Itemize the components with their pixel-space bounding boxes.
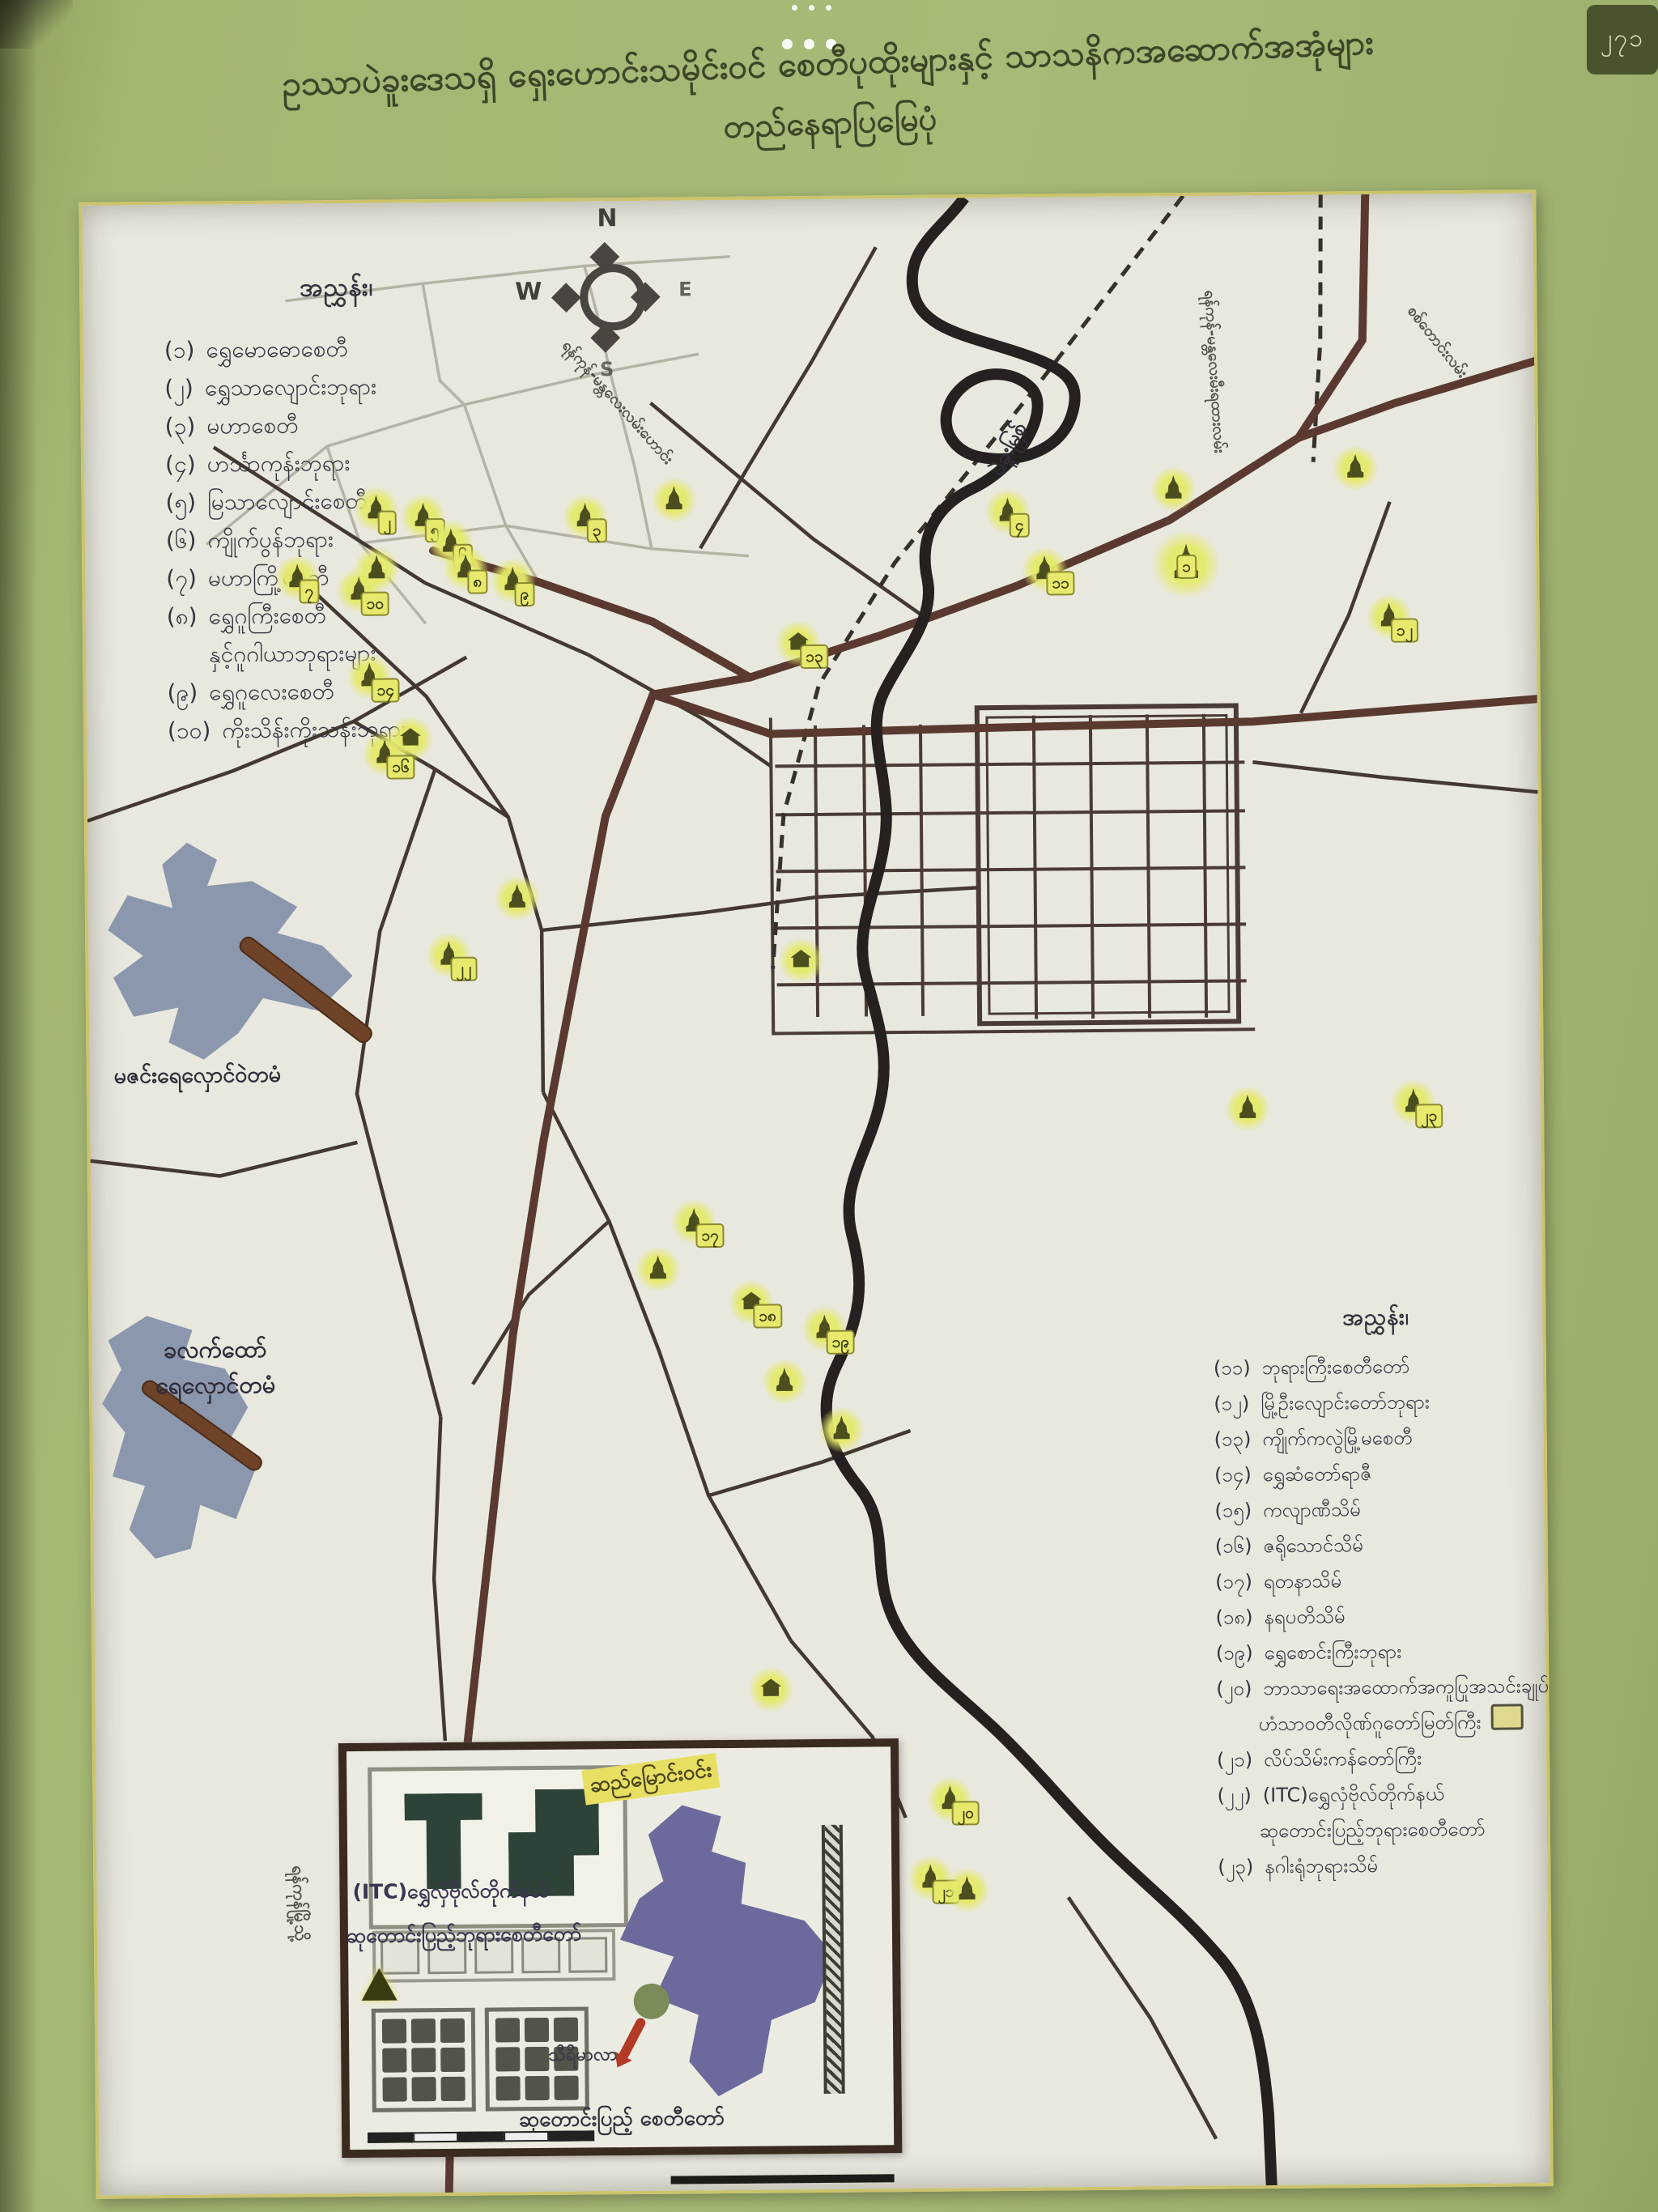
legend-item: (၂)ရွှေသာလျောင်းဘုရား [164,367,404,407]
legend-item-label: ကလျာဏီသိမ် [1263,1491,1361,1528]
legend-item: (၁၈)နရပတိသိမ် [1215,1597,1548,1636]
pagoda-stupa-icon: ၁၄ [346,654,392,700]
legend-item: (၃)မဟာစေတီ [164,405,404,445]
page-left-edge-shadow [0,0,37,2212]
legend-item-label: နဂါးရုံဘုရားသိမ် [1265,1848,1378,1884]
south-reservoir-label-line2: ရေလှောင်တမံ [155,1367,276,1403]
book-page-photo: ၂၇၁ ဥဿာပဲခူးဒေသရှိ ရှေးဟောင်းသမိုင်းဝင် … [0,0,1658,2212]
inset-scale-bar [368,2130,594,2142]
legend-item-label: ဘုရားကြီးစေတီတော် [1261,1349,1409,1386]
pagoda-stupa-icon [1225,1086,1270,1131]
inset-itc-label-line2: ဆုတောင်းပြည့်ဘုရားစေတီတော် [346,1921,582,1954]
old-city-grid [771,705,1255,1033]
pagoda-number-chip: ၁၇ [695,1223,725,1248]
shrine-hall-icon [748,1666,793,1712]
pagoda-stupa-icon: ၈ [443,546,488,591]
pagoda-number-chip: ၁၃ [800,644,829,669]
pagoda-number-chip: ၁ [1176,555,1197,579]
pagoda-stupa-icon [651,477,696,522]
pagoda-number-chip: ၁၉ [826,1330,855,1355]
pagoda-stupa-icon [818,1406,864,1452]
legend-item-label: ဇရိုသောင်သိမ် [1263,1527,1363,1563]
pagoda-number-chip: ၂၃ [1415,1104,1443,1128]
road-label-to-yangon: ရန်ကုန်မြို့သို့ [283,1865,312,1942]
legend-item-number: (၁၁) [1214,1350,1251,1385]
pagoda-stupa-icon: ၃ [562,494,607,539]
legend-item: (၁၁)ဘုရားကြီးစေတီတော် [1214,1347,1546,1386]
pagoda-stupa-icon [636,1246,681,1291]
legend-item-label: ကျိုက်ကလွဲမြို့မစေတီ [1262,1420,1413,1457]
pagoda-stupa-icon [495,875,540,921]
legend-item-number: (၃) [164,407,195,445]
pagoda-stupa-icon: ၂၀ [927,1776,972,1822]
legend-item-number: (၁၃) [1214,1421,1251,1457]
legend-item-label: နရပတိသိမ် [1264,1598,1346,1635]
legend-item-label: (ITC)ရွှေလှံဗိုလ်တိုက်နယ် [1263,1776,1445,1813]
pagoda-stupa-icon: ၄ [984,489,1030,534]
camera-artifact-dots-small [792,5,831,11]
legend-item-number: (၁၉) [1216,1635,1253,1670]
pagoda-number-chip: ၁၆ [386,755,415,779]
legend-item-label: ရတနာသိမ် [1264,1563,1342,1599]
legend-item-number: (၁၆) [1215,1528,1252,1563]
inset-pagoda-icon [361,1968,397,2001]
legend-item-number: (၁၂) [1214,1385,1249,1421]
pagoda-stupa-icon [1333,445,1378,491]
inset-red-arrow [618,2016,648,2061]
pagoda-stupa-icon: ၂ [353,486,398,531]
legend-item-label: လိပ်သိမ်းကန်တော်ကြီး [1264,1740,1422,1777]
pagoda-number-chip: ၂ [378,510,397,534]
legend-item: (၂၃)နဂါးရုံဘုရားသိမ် [1218,1846,1550,1885]
legend-item-label: ရွှေဂူလေးစေတီ [209,672,334,711]
legend-item: (၁၆)ဇရိုသောင်သိမ် [1215,1525,1548,1564]
inset-canal-compound-label: ဆည်မြောင်းဝင်း [581,1753,721,1805]
legend-item: (၁၉)ရွှေစောင်းကြီးဘုရား [1216,1632,1549,1671]
pagoda-stupa-icon: ၁၂ [1367,594,1412,640]
pagoda-stupa-icon: ၉ [490,558,535,603]
compass-north-label: N [597,204,617,232]
pagoda-stupa-icon [762,1359,807,1404]
pagoda-number-chip: ၄ [1010,513,1030,538]
legend-item-number: (၁၈) [1215,1599,1252,1635]
map-sheet: N W E S အညွှန်း၊ (၁)ရွှေမောဓောစေတီ(၂)ရွှ… [79,189,1553,2199]
inset-thiri-mala-label: သီရိမာလာ [548,2042,617,2069]
legend-item-label: မဟာစေတီ [206,406,299,445]
pagoda-number-chip: ၁၁ [1046,571,1075,595]
pagoda-stupa-icon: ၁၇ [671,1199,716,1244]
pagoda-stupa-icon: ၇ [274,555,320,600]
legend-item: (၂၀)ဘာသာရေးအထောက်အကူပြုအသင်းချုပ် [1216,1668,1549,1707]
pagoda-number-chip: ၂၂ [450,957,477,981]
inset-itc-label-line1: (ITC)ရွှေလှံဗိုလ်တိုက်နယ် [352,1878,549,1909]
pagoda-number-chip: ၃ [587,518,607,542]
legend-item-number: (၂၃) [1218,1848,1253,1884]
legend-item-label: ဟင်္သာကုန်းဘုရား [207,444,351,483]
legend-item-label: မြို့ဦးလျောင်းတော်ဘုရား [1261,1384,1430,1421]
pagoda-stupa-icon: ၁ [1152,530,1221,599]
foundation-grid-block-1 [372,2008,476,2112]
legend-item-label: ရွှေစောင်းကြီးဘုရား [1265,1634,1402,1670]
pagoda-stupa-icon: ၁၉ [801,1306,847,1351]
pagoda-stupa-icon: ၂၂ [426,933,471,978]
legend-item-wrap-label: ဆုတောင်းပြည့်ဘုရားစေတီတော် [1260,1811,1486,1848]
legend-item: (၂၂)(ITC)ရွှေလှံဗိုလ်တိုက်နယ် [1217,1775,1550,1814]
legend-right-list: (၁၁)ဘုရားကြီးစေတီတော်(၁၂)မြို့ဦးလျောင်းတ… [1214,1347,1551,1885]
legend-item-number: (၄) [165,445,196,483]
legend-item-number: (၂) [164,369,193,407]
legend-item: (၂၁)လိပ်သိမ်းကန်တော်ကြီး [1217,1739,1550,1778]
legend-item-number: (၁၅) [1214,1492,1252,1528]
legend-item-number: (၈) [167,598,198,636]
legend-item-number: (၁) [164,331,195,369]
legend-item-number: (၂၂) [1217,1777,1252,1813]
inset-hatched-causeway [822,1825,845,2094]
legend-item-number: (၁၄) [1214,1457,1252,1492]
pagoda-stupa-icon [1150,466,1196,512]
legend-item-number: (၅) [165,483,196,521]
legend-item-wrap-label: ဟံသာဝတီလိုဏ်ဂူတော်မြတ်ကြီး [1259,1704,1482,1742]
legend-item-number: (၂၀) [1216,1670,1252,1706]
compass-west-label: W [515,278,542,306]
pagoda-number-chip: ၈ [467,570,487,594]
inset-palace-plan: ဆည်မြောင်းဝင်း (ITC)ရွှေလှံဗိုလ်တိုက်နယ်… [338,1738,902,2158]
legend-item: (၁)ရွှေမောဓောစေတီ [164,329,404,369]
legend-item-label: ရွှေမောဓောစေတီ [206,330,348,369]
legend-right: အညွှန်း၊ (၁၁)ဘုရားကြီးစေတီတော်(၁၂)မြို့ဦ… [1213,1300,1550,1885]
page-number: ၂၇၁ [1601,22,1645,58]
legend-item-wrap: ဟံသာဝတီလိုဏ်ဂူတော်မြတ်ကြီး [1217,1704,1550,1742]
legend-right-header: အညွှန်း၊ [1342,1300,1545,1336]
legend-item-label: ရွှေဆံတော်ရာဇီ [1263,1456,1372,1492]
legend-item: (၁၂)မြို့ဦးလျောင်းတော်ဘုရား [1214,1383,1546,1422]
pagoda-number-chip: ၁၄ [371,678,400,702]
pagoda-stupa-icon [944,1867,989,1912]
pagoda-stupa-icon: ၂၃ [1391,1079,1436,1125]
legend-item-label: ရွှေသာလျောင်းဘုရား [205,368,377,407]
shrine-hall-icon: ၁၈ [729,1279,774,1325]
compass-spike-west [551,283,581,313]
legend-item-label: ဘာသာရေးအထောက်အကူပြုအသင်းချုပ် [1263,1668,1549,1706]
shrine-hall-icon [778,938,823,983]
inset-island [633,1984,669,2019]
pagoda-stupa-icon: ၁၁ [1022,547,1067,592]
compass-east-label: E [678,278,692,300]
page-title: ဥဿာပဲခူးဒေသရှိ ရှေးဟောင်းသမိုင်းဝင် စေတီ… [96,11,1562,177]
pagoda-number-chip: ၉ [514,582,534,606]
pagoda-number-chip: ၁၂ [1391,618,1418,642]
legend-item-label: မြသာလျောင်းစေတီ [207,482,368,521]
legend-item-number: (၁၀) [168,712,211,750]
legend-item: (၁၅)ကလျာဏီသိမ် [1214,1490,1547,1529]
legend-item-number: (၆) [166,521,197,559]
legend-item-number: (၁၇) [1215,1563,1252,1599]
pagoda-number-chip: ၁၈ [753,1304,782,1328]
shrine-hall-icon: ၁၃ [776,620,821,666]
legend-item-number: (၉) [167,674,198,712]
page-number-badge: ၂၇၁ [1587,5,1658,74]
north-reservoir-label: မဇင်းရေလှောင်ဝဲတမံ [114,1061,282,1095]
compass-rose: N W E S [519,206,699,394]
south-reservoir-label: ခလက်ထော် ရေလှောင်တမံ [155,1331,275,1403]
legend-item: (၄)ဟင်္သာကုန်းဘုရား [165,443,405,483]
palace-building-icon-1 [404,1793,483,1890]
legend-item-label: ကျိုက်ပွန်ဘုရား [207,520,334,559]
pagoda-number-chip: ၇ [299,579,319,603]
pagoda-number-chip: ၁၀ [360,592,389,616]
legend-item: (၁၄)ရွှေဆံတော်ရာဇီ [1214,1454,1547,1493]
legend-item-wrap: ဆုတောင်းပြည့်ဘုရားစေတီတော် [1218,1810,1550,1849]
legend-marker-box-icon [1490,1704,1523,1729]
south-reservoir-label-line1: ခလက်ထော် [155,1331,275,1368]
legend-item: (၁၃)ကျိုက်ကလွဲမြို့မစေတီ [1214,1419,1546,1457]
pagoda-stupa-icon [354,546,399,591]
legend-item-number: (၂၁) [1217,1742,1252,1777]
pagoda-number-chip: ၂၀ [952,1801,980,1825]
legend-item: (၁၇)ရတနာသိမ် [1215,1561,1548,1600]
pagoda-stupa-icon: ၁၆ [362,730,407,776]
legend-item-number: (၇) [166,559,197,598]
legend-left-header: အညွှန်း၊ [300,270,403,308]
